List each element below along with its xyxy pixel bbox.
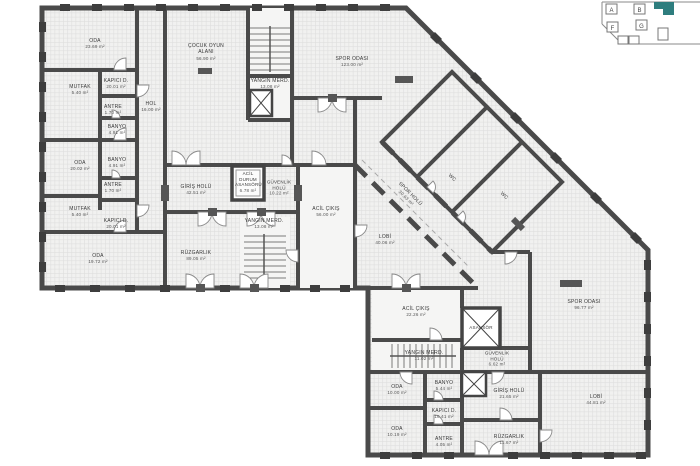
room-label-spor-odasi-2: SPOR ODASI96.77 m² xyxy=(567,299,600,311)
room-label-kapici-d-2: KAPICI D.20.01 m² xyxy=(104,218,129,230)
room-label-oda-4: ODA10.00 m² xyxy=(387,384,406,396)
room-label-yangin-merd-2: YANGIN MERD.13.08 m² xyxy=(245,218,284,230)
room-label-cocuk-oyun-alani: ÇOCUK OYUN ALANI56.90 m² xyxy=(188,43,224,61)
room-label-mutfak-2: MUTFAK5.40 m² xyxy=(69,206,90,218)
room-label-oda-1: ODA23.69 m² xyxy=(85,38,104,50)
room-labels: ODA23.69 m² MUTFAK5.40 m² KAPICI D.20.01… xyxy=(0,0,700,466)
room-label-guvenlik-holu-2: GÜVENLİK HOLÜ6.62 m² xyxy=(484,351,510,368)
room-label-acil-durum-asansoru: ACİL DURUM ASANSÖRÜ6.78 m² xyxy=(235,171,261,194)
room-label-acil-cikis-2: ACİL ÇIKIŞ22.26 m² xyxy=(402,306,429,318)
room-label-kapici-d-1: KAPICI D.20.01 m² xyxy=(104,78,129,90)
key-plan: A B F G xyxy=(600,0,700,50)
room-label-banyo-2: BANYO4.91 m² xyxy=(108,157,127,169)
room-label-giris-holu-1: GİRİŞ HOLÜ42.51 m² xyxy=(181,184,212,196)
room-label-giris-holu-2: GİRİŞ HOLÜ21.65 m² xyxy=(494,388,525,400)
room-label-mutfak-1: MUTFAK5.40 m² xyxy=(69,84,90,96)
key-plan-block xyxy=(658,28,668,40)
room-label-kapici-d-3: KAPICI D.10.41 m² xyxy=(432,408,457,420)
floor-plan-canvas: ODA23.69 m² MUTFAK5.40 m² KAPICI D.20.01… xyxy=(0,0,700,466)
room-label-oda-5: ODA10.19 m² xyxy=(387,426,406,438)
key-plan-block xyxy=(629,36,639,44)
key-plan-label-a: A xyxy=(609,8,613,14)
room-label-lobi-2: LOBİ44.81 m² xyxy=(586,394,605,406)
room-label-guvenlik-holu-1: GÜVENLİK HOLÜ10.22 m² xyxy=(266,180,292,197)
room-label-yangin-merd-1: YANGIN MERD.13.08 m² xyxy=(251,78,290,90)
room-label-spor-odasi-1: SPOR ODASI123.00 m² xyxy=(335,56,368,68)
room-label-oda-3: ODA19.72 m² xyxy=(88,253,107,265)
key-plan-label-b: B xyxy=(637,8,641,14)
room-label-spor-holu: SPOR HOLÜ30.63 m² xyxy=(393,181,424,212)
room-label-acil-cikis-1: ACİL ÇIKIŞ56.00 m² xyxy=(312,206,339,218)
room-label-antre-1: ANTRE1.70 m² xyxy=(104,104,122,116)
room-label-ruzgarlik-1: RÜZGARLIK89.05 m² xyxy=(181,250,211,262)
room-label-antre-2: ANTRE1.70 m² xyxy=(104,182,122,194)
key-plan-label-f: F xyxy=(611,26,615,32)
room-label-banyo-1: BANYO4.91 m² xyxy=(108,124,127,136)
key-plan-label-g: G xyxy=(639,24,644,30)
room-label-banyo-3: BANYO5.44 m² xyxy=(435,380,454,392)
room-label-antre-3: ANTRE4.05 m² xyxy=(435,436,453,448)
room-label-oda-2: ODA20.02 m² xyxy=(70,160,89,172)
room-label-asansor: ASANSÖR xyxy=(468,325,494,331)
room-label-yangin-merd-3: YANGIN MERD.11.02 m² xyxy=(405,350,444,362)
room-label-wc-1: WC xyxy=(447,173,458,184)
room-label-lobi-1: LOBİ40.06 m² xyxy=(375,234,394,246)
key-plan-block xyxy=(618,36,628,44)
room-label-wc-2: WC xyxy=(499,191,510,202)
room-label-hol: HOL16.00 m² xyxy=(141,101,160,113)
room-label-ruzgarlik-2: RÜZGARLIK11.67 m² xyxy=(494,434,524,446)
